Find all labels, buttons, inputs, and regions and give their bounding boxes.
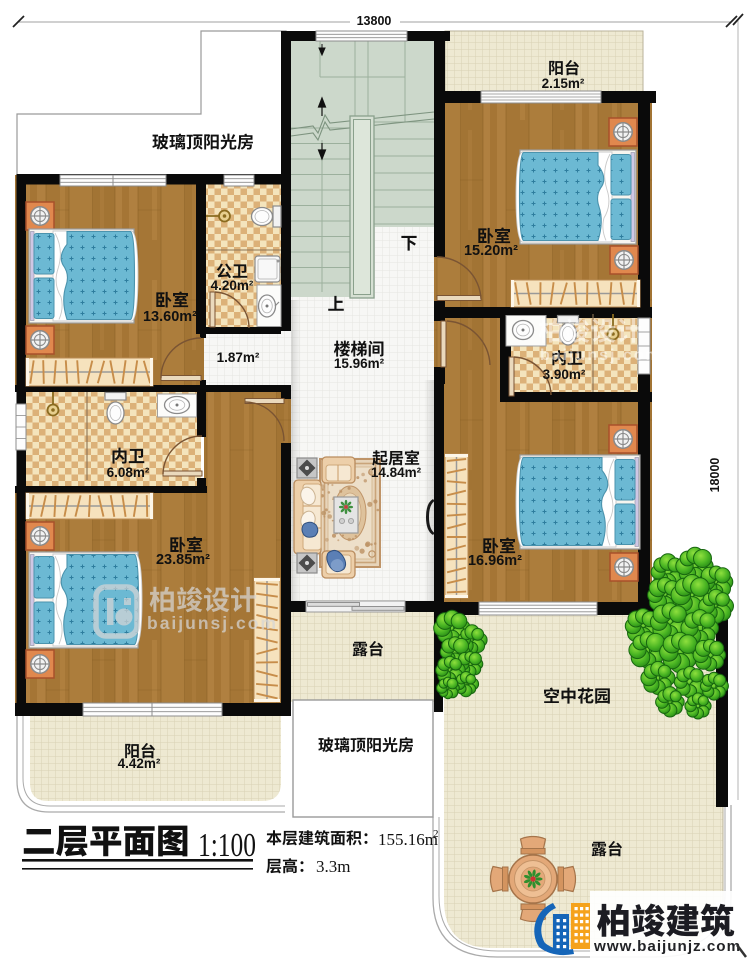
svg-text:2: 2	[433, 828, 439, 840]
svg-text:13.60m²: 13.60m²	[143, 309, 197, 325]
svg-text:www.baijunjz.com: www.baijunjz.com	[593, 938, 741, 955]
svg-text:baijunsj.com: baijunsj.com	[147, 613, 278, 633]
svg-text:3.90m²: 3.90m²	[543, 367, 586, 382]
svg-text:13800: 13800	[357, 14, 392, 28]
svg-text:4.20m²: 4.20m²	[211, 278, 254, 293]
svg-text:15.96m²: 15.96m²	[334, 356, 385, 371]
svg-text:1:100: 1:100	[198, 827, 256, 864]
svg-text:1.87m²: 1.87m²	[217, 350, 260, 365]
svg-text:baijunsj.com: baijunsj.com	[540, 347, 662, 364]
svg-text:23.85m²: 23.85m²	[156, 552, 210, 568]
svg-text:2.15m²: 2.15m²	[542, 76, 585, 91]
svg-text:14.84m²: 14.84m²	[371, 465, 422, 480]
svg-text:3.3m: 3.3m	[316, 857, 350, 876]
svg-text:6.08m²: 6.08m²	[107, 465, 150, 480]
svg-text:16.96m²: 16.96m²	[468, 553, 522, 569]
svg-text:155.16m: 155.16m	[378, 830, 438, 849]
svg-text:15.20m²: 15.20m²	[464, 243, 518, 259]
svg-text:4.42m²: 4.42m²	[118, 756, 161, 771]
svg-text:18000: 18000	[708, 458, 722, 493]
